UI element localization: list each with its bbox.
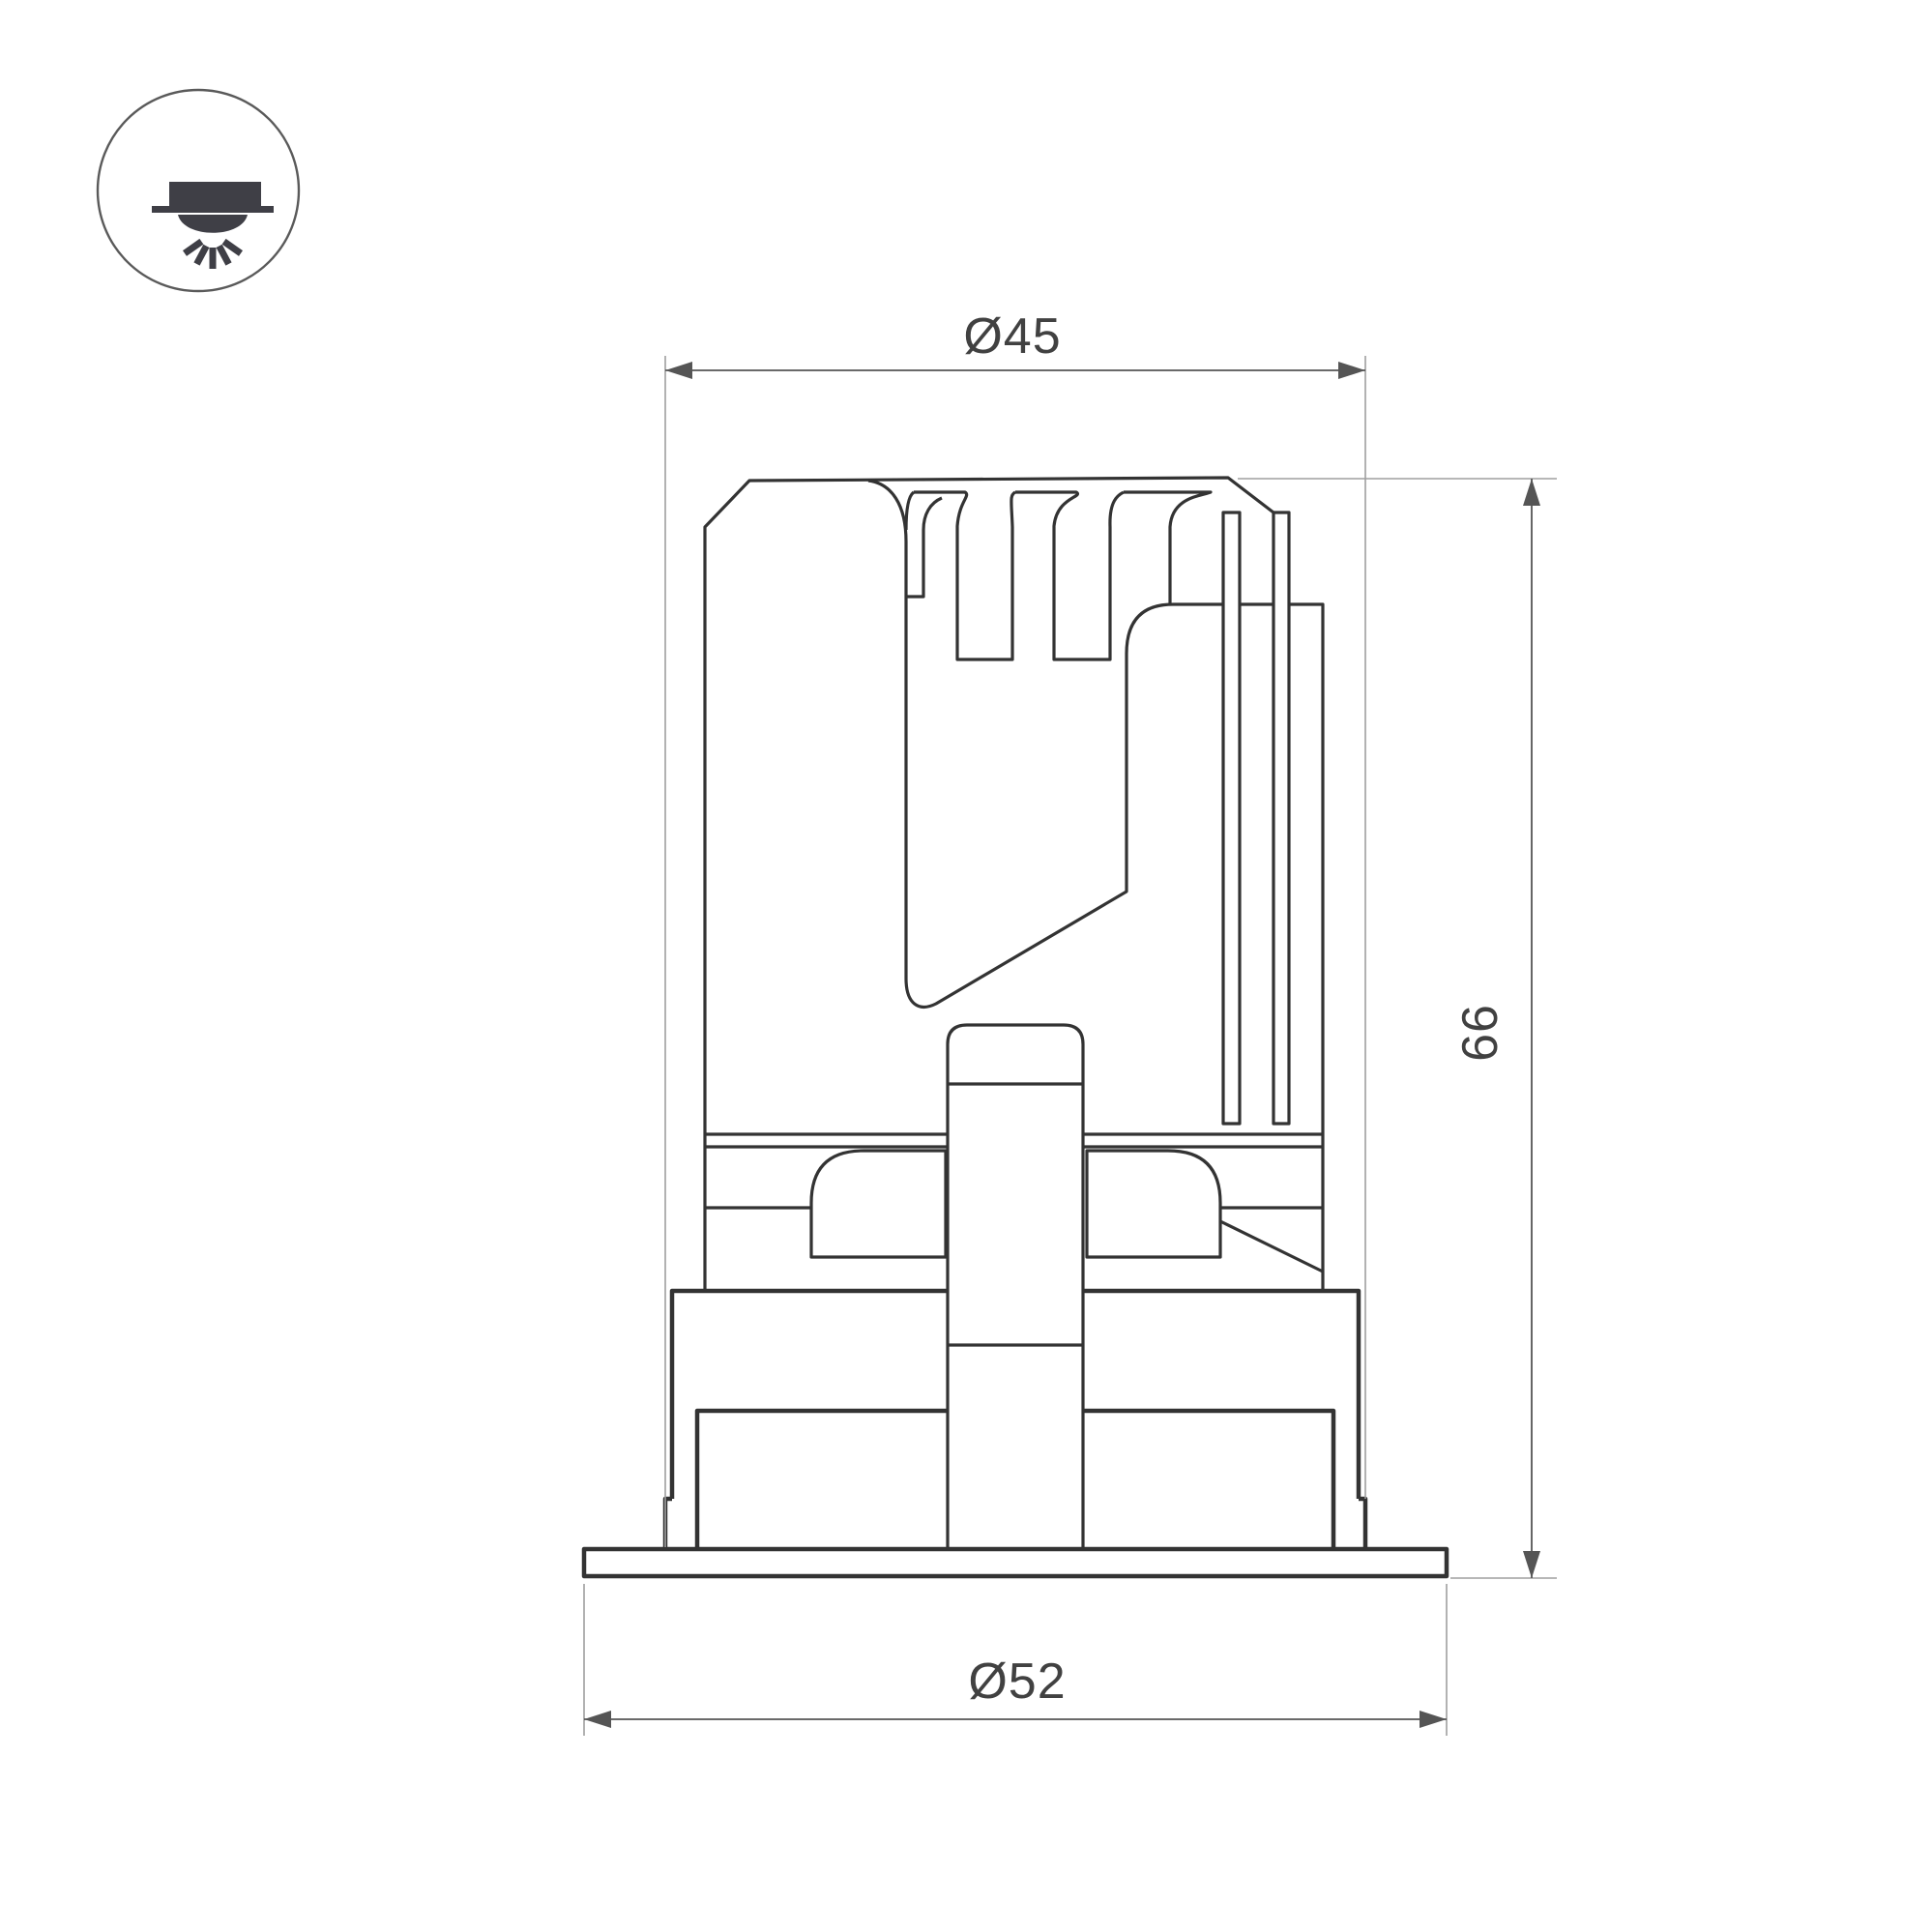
- arrow-left-icon: [665, 362, 692, 379]
- icon-light-rays: [185, 242, 241, 269]
- extension-lines-top: [665, 356, 1365, 1547]
- arrow-right-icon: [1420, 1711, 1447, 1728]
- fin-plate-right: [1273, 512, 1289, 1124]
- dimension-flange-diameter: Ø52: [584, 1584, 1447, 1736]
- dimension-label-height: 66: [1452, 1004, 1508, 1062]
- dimension-height: 66: [1238, 479, 1557, 1578]
- central-stem: [948, 1025, 1083, 1549]
- lower-inner-box: [697, 1411, 1333, 1549]
- heatsink-base-joints: [705, 1134, 1323, 1147]
- lower-body-box: [672, 1291, 1359, 1499]
- right-bracket-block: [1087, 1151, 1220, 1257]
- stem-dividers: [948, 1084, 1083, 1345]
- technical-drawing-canvas: Ø45 66 Ø52: [0, 0, 1932, 1932]
- icon-ceiling-bar: [152, 206, 274, 213]
- mounting-feet: [665, 1499, 1365, 1549]
- luminaire-section-view: [584, 478, 1447, 1576]
- arrow-up-icon: [1523, 479, 1540, 506]
- technical-drawing-page: Ø45 66 Ø52: [0, 0, 1932, 1932]
- fin-slot-b: [914, 492, 1015, 659]
- arrow-left-icon: [584, 1711, 611, 1728]
- fin-slot-a: [906, 492, 942, 597]
- fin-plate-left: [1223, 512, 1240, 1124]
- right-shell: [1173, 604, 1323, 1291]
- fin-slot-c: [1015, 492, 1124, 659]
- arrow-down-icon: [1523, 1551, 1540, 1578]
- dimension-label-flange-diameter: Ø52: [968, 1654, 1066, 1710]
- icon-light-dome: [178, 215, 248, 233]
- extension-lines-height: [1238, 479, 1557, 1578]
- heatsink-outline: [705, 478, 1273, 1291]
- left-bracket-block: [811, 1151, 946, 1257]
- dimension-body-diameter: Ø45: [665, 308, 1365, 1547]
- recessed-downlight-icon: [98, 90, 299, 291]
- icon-housing: [169, 182, 261, 206]
- right-bracket-notch: [1220, 1221, 1323, 1272]
- trim-flange: [584, 1549, 1447, 1576]
- fin-slot-d: [1124, 492, 1211, 604]
- arrow-right-icon: [1338, 362, 1365, 379]
- dimension-label-body-diameter: Ø45: [963, 308, 1061, 365]
- reflector-cavity: [868, 481, 1173, 1007]
